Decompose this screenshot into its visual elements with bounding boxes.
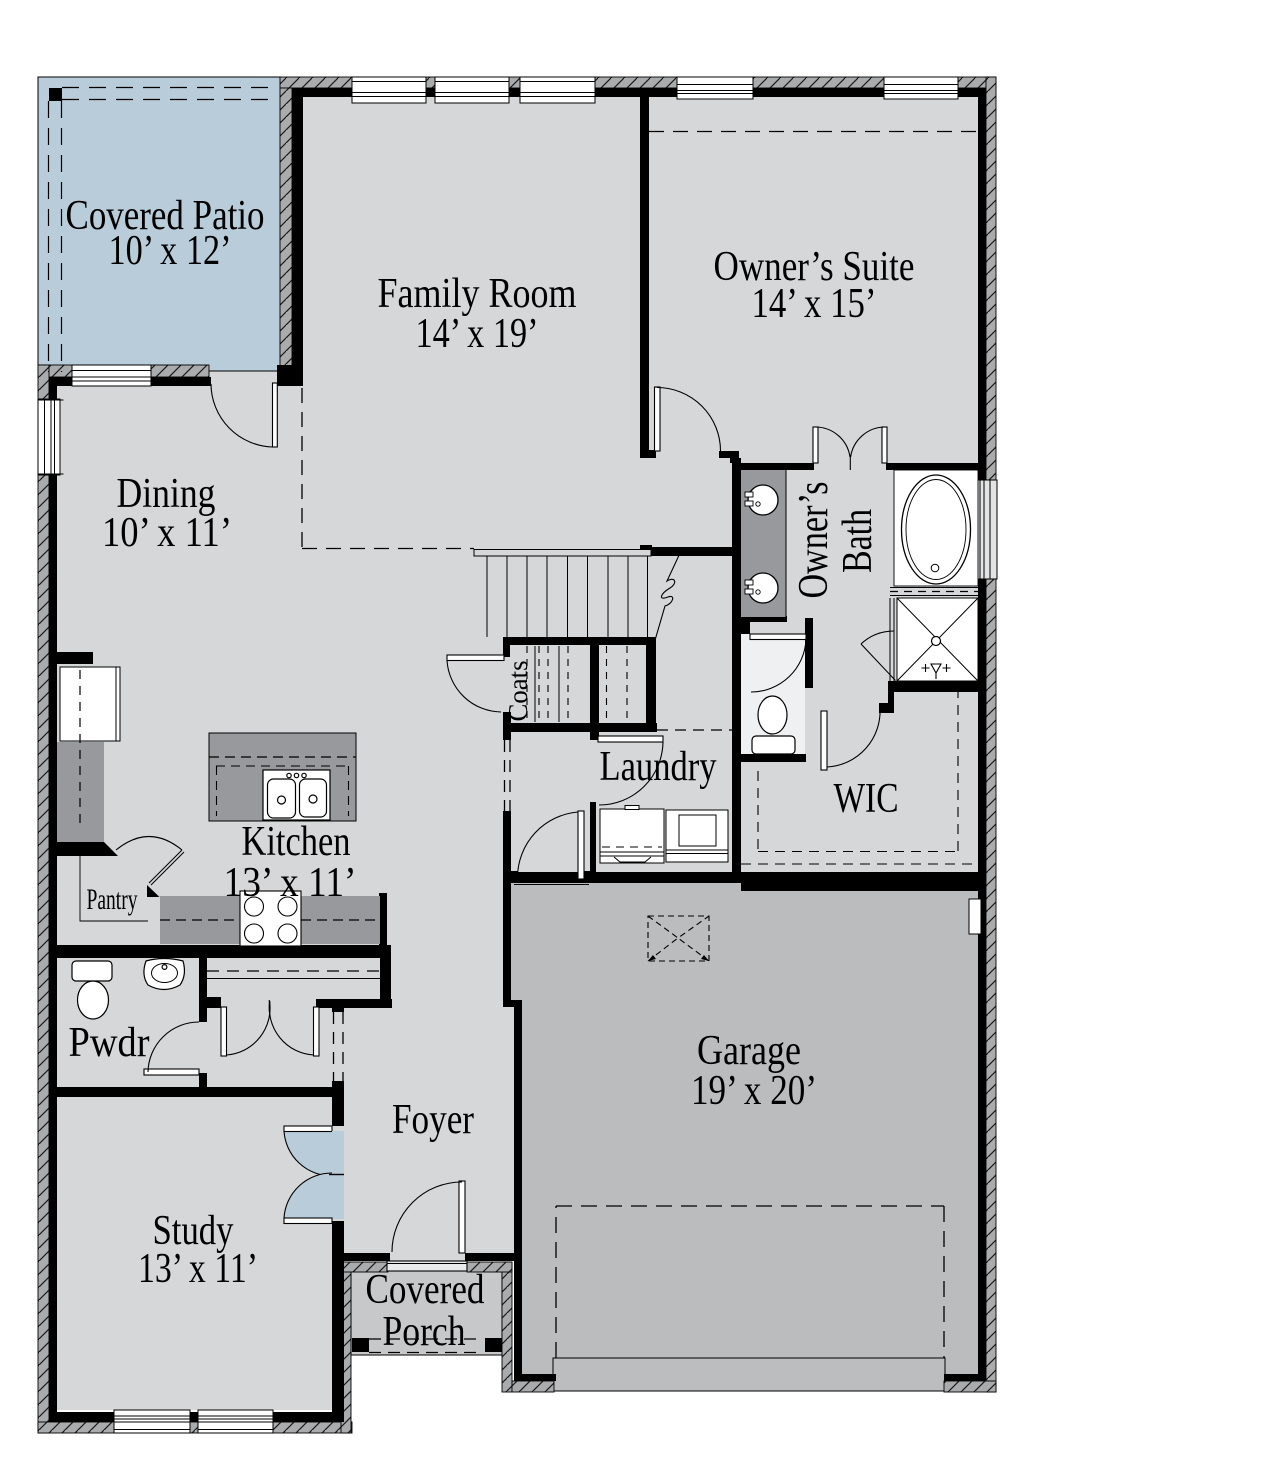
svg-text:10’ x 11’: 10’ x 11’ [102, 510, 232, 556]
svg-text:Bath: Bath [835, 509, 881, 573]
svg-text:14’ x 19’: 14’ x 19’ [416, 311, 539, 357]
svg-text:14’ x 15’: 14’ x 15’ [752, 281, 877, 327]
svg-text:WIC: WIC [834, 776, 899, 822]
svg-text:Porch: Porch [383, 1309, 466, 1355]
svg-text:13’ x 11’: 13’ x 11’ [138, 1246, 258, 1292]
svg-text:Foyer: Foyer [392, 1097, 474, 1143]
svg-text:13’ x 11’: 13’ x 11’ [224, 860, 357, 906]
svg-text:10’ x 12’: 10’ x 12’ [109, 228, 232, 274]
svg-text:Pantry: Pantry [87, 883, 138, 916]
svg-text:Kitchen: Kitchen [242, 819, 351, 865]
svg-text:Pwdr: Pwdr [69, 1020, 150, 1066]
svg-text:Laundry: Laundry [600, 744, 717, 790]
svg-text:19’ x 20’: 19’ x 20’ [691, 1068, 817, 1114]
svg-text:Coats: Coats [503, 661, 533, 722]
svg-text:Covered: Covered [366, 1267, 485, 1313]
svg-text:Owner’s: Owner’s [791, 482, 837, 599]
